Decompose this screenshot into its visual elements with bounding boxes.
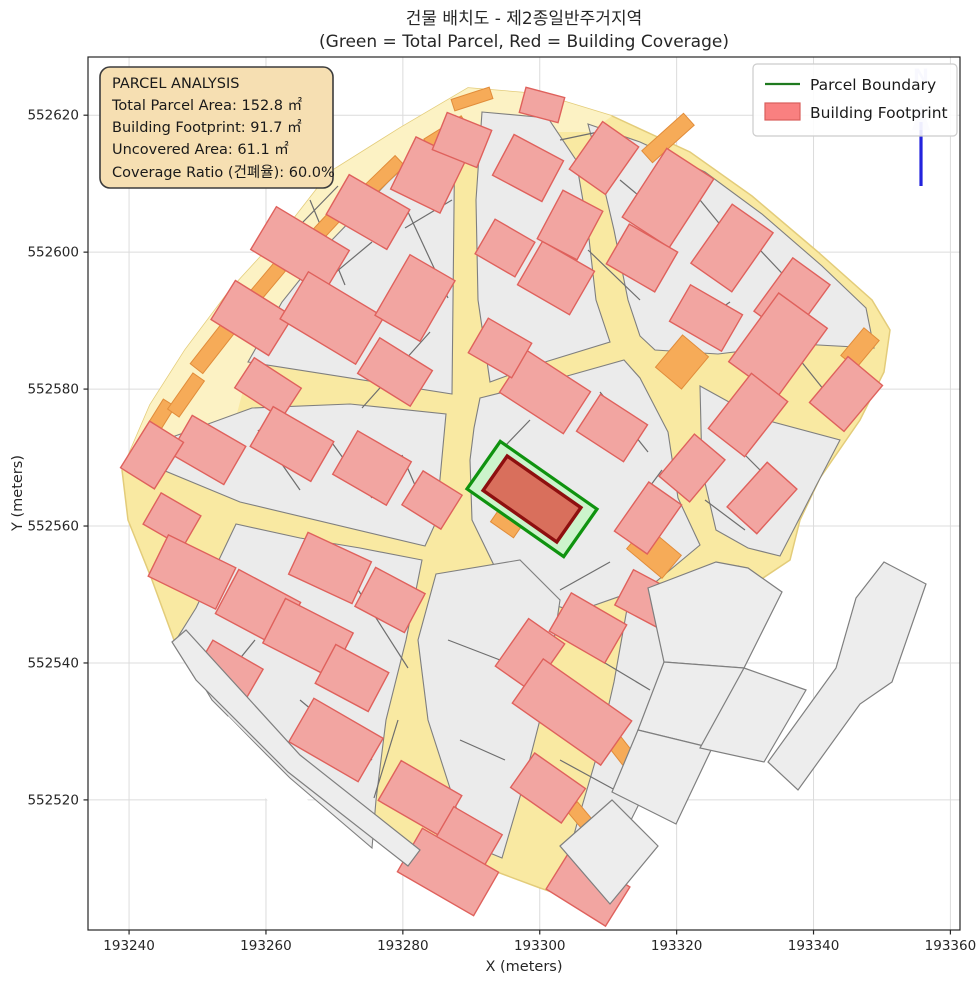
x-tick-label: 193240 [103,938,155,954]
x-tick-label: 193260 [240,938,292,954]
analysis-line-3: Building Footprint: 91.7 ㎡ [112,119,302,136]
legend-background [753,64,957,136]
x-tick-label: 193360 [925,938,977,954]
legend: Parcel Boundary Building Footprint [753,64,957,136]
legend-label-building-footprint: Building Footprint [810,104,948,122]
y-tick-label: 552560 [27,519,79,535]
analysis-box: PARCEL ANALYSIS Total Parcel Area: 152.8… [100,67,335,188]
x-tick-label: 193300 [514,938,566,954]
figure-canvas: 건물 배치도 - 제2종일반주거지역 (Green = Total Parcel… [0,0,980,990]
y-tick-label: 552580 [27,382,79,398]
y-tick-label: 552540 [27,655,79,671]
y-tick-label: 552620 [27,108,79,124]
analysis-line-2: Total Parcel Area: 152.8 ㎡ [111,97,303,114]
vacant-parcel [768,562,926,790]
analysis-line-5: Coverage Ratio (건폐율): 60.0% [112,164,335,181]
x-axis-label: X (meters) [485,959,562,975]
x-tick-label: 193320 [651,938,703,954]
legend-label-parcel-boundary: Parcel Boundary [810,76,936,94]
x-tick-label: 193340 [788,938,840,954]
building-footprint-swatch [765,103,800,120]
chart-title: 건물 배치도 - 제2종일반주거지역 [406,9,642,29]
analysis-line-4: Uncovered Area: 61.1 ㎡ [112,141,289,158]
analysis-line-1: PARCEL ANALYSIS [112,76,239,92]
y-tick-label: 552600 [27,245,79,261]
y-axis-label: Y (meters) [10,455,26,532]
chart-subtitle: (Green = Total Parcel, Red = Building Co… [319,32,729,52]
x-tick-label: 193280 [377,938,429,954]
y-tick-label: 552520 [27,792,79,808]
